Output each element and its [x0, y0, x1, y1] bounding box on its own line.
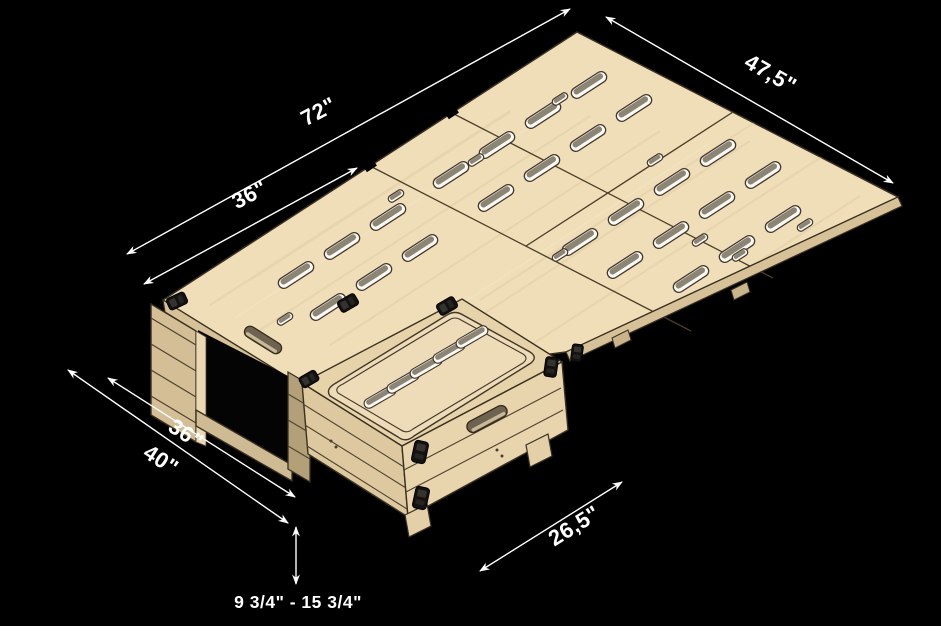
latch-clip: [570, 344, 584, 363]
screw-dot: [335, 446, 338, 449]
dim-label-height-range: 9 3/4" - 15 3/4": [234, 592, 362, 612]
latch-clip: [543, 356, 558, 377]
diagram-canvas: 72" 36" 47,5" 36" 40" 26,5" 9 3/4" - 15 …: [0, 0, 941, 626]
screw-dot: [330, 440, 333, 443]
screw-dot: [496, 449, 499, 452]
screw-dot: [501, 455, 504, 458]
bed-system-isometric-diagram: 72" 36" 47,5" 36" 40" 26,5" 9 3/4" - 15 …: [0, 0, 941, 626]
